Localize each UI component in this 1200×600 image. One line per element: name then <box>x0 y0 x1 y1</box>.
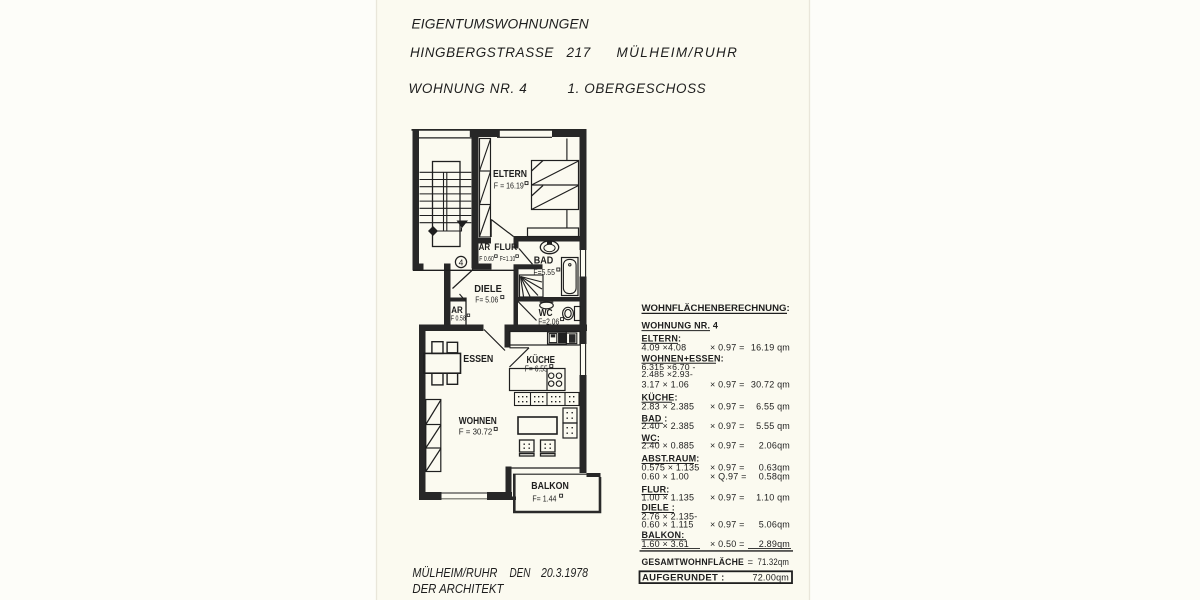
svg-text:0.58qm: 0.58qm <box>759 472 790 482</box>
svg-text:× Q.97 =: × Q.97 = <box>710 472 747 482</box>
svg-text:× 0.97 =: × 0.97 = <box>710 519 745 529</box>
svg-text:2.89qm: 2.89qm <box>759 539 790 549</box>
svg-text:F= 5.06: F= 5.06 <box>475 295 498 304</box>
svg-text:0.60 × 1.00: 0.60 × 1.00 <box>642 472 690 482</box>
svg-text:WOHNEN: WOHNEN <box>459 416 497 427</box>
svg-text:2.06qm: 2.06qm <box>759 440 790 450</box>
svg-text:× 0.97 =: × 0.97 = <box>710 402 745 412</box>
svg-text:F=1.10: F=1.10 <box>500 256 516 263</box>
svg-text:6.55 qm: 6.55 qm <box>756 402 790 412</box>
svg-text:5.06qm: 5.06qm <box>759 519 790 529</box>
svg-text:1.00 × 1.135: 1.00 × 1.135 <box>642 492 695 502</box>
svg-text:F 0.60: F 0.60 <box>479 256 494 263</box>
svg-text:× 0.97 =: × 0.97 = <box>710 440 745 450</box>
svg-text:WOHNUNG NR. 4: WOHNUNG NR. 4 <box>409 81 528 96</box>
svg-text:1. OBERGESCHOSS: 1. OBERGESCHOSS <box>568 81 707 96</box>
svg-text:DEN: DEN <box>510 566 532 580</box>
svg-text:217: 217 <box>566 45 591 60</box>
svg-text:BAD: BAD <box>534 255 554 266</box>
svg-text:DER ARCHITEKT: DER ARCHITEKT <box>412 581 504 596</box>
svg-text:GESAMTWOHNFLÄCHE: GESAMTWOHNFLÄCHE <box>642 557 745 568</box>
svg-text:72.00qm: 72.00qm <box>753 573 790 584</box>
svg-text:=: = <box>748 557 754 568</box>
svg-text:F= 1.44: F= 1.44 <box>532 494 557 503</box>
svg-text:AR: AR <box>479 242 491 253</box>
svg-text:16.19 qm: 16.19 qm <box>751 343 790 353</box>
svg-text:AUFGERUNDET :: AUFGERUNDET : <box>642 573 725 584</box>
svg-text:1.60 × 3.61: 1.60 × 3.61 <box>642 539 690 549</box>
svg-text:× 0.97 =: × 0.97 = <box>710 421 745 431</box>
svg-text:WOHNFLÄCHENBERECHNUNG:: WOHNFLÄCHENBERECHNUNG: <box>642 303 790 314</box>
svg-text:5.55 qm: 5.55 qm <box>756 421 790 431</box>
svg-text:2.40 × 0.885: 2.40 × 0.885 <box>642 440 695 450</box>
svg-text:× 0.97 =: × 0.97 = <box>710 492 745 502</box>
svg-text:ELTERN: ELTERN <box>493 169 527 180</box>
svg-text:× 0.97 =: × 0.97 = <box>710 380 745 390</box>
svg-text:F=2.06: F=2.06 <box>538 317 559 326</box>
svg-text:× 0.50 =: × 0.50 = <box>710 539 745 549</box>
svg-text:BALKON: BALKON <box>531 480 569 492</box>
svg-text:F = 30.72: F = 30.72 <box>459 428 493 437</box>
svg-text:× 0.97 =: × 0.97 = <box>710 343 745 353</box>
svg-text:AR: AR <box>451 305 463 316</box>
svg-text:0.60 × 1.115: 0.60 × 1.115 <box>642 519 694 529</box>
svg-text:F= 6.55: F= 6.55 <box>525 364 549 373</box>
svg-text:2.485 ×2.93-: 2.485 ×2.93- <box>642 369 693 379</box>
svg-text:30.72 qm: 30.72 qm <box>751 380 790 390</box>
svg-text:HINGBERGSTRASSE: HINGBERGSTRASSE <box>410 45 554 60</box>
svg-text:4: 4 <box>459 257 464 267</box>
svg-text:EIGENTUMSWOHNUNGEN: EIGENTUMSWOHNUNGEN <box>412 17 589 32</box>
svg-text:2.40 × 2.385: 2.40 × 2.385 <box>642 421 695 431</box>
svg-text:2.83 × 2.385: 2.83 × 2.385 <box>642 402 695 412</box>
svg-text:DIELE: DIELE <box>474 283 502 295</box>
svg-text:WOHNUNG NR. 4: WOHNUNG NR. 4 <box>642 321 719 331</box>
svg-text:FLUR: FLUR <box>494 242 517 253</box>
svg-text:MÜLHEIM/RUHR: MÜLHEIM/RUHR <box>412 565 497 580</box>
svg-text:F 0.58: F 0.58 <box>451 316 466 323</box>
svg-text:F = 16.19: F = 16.19 <box>494 182 524 191</box>
svg-text:MÜLHEIM/RUHR: MÜLHEIM/RUHR <box>617 45 739 60</box>
svg-text:ESSEN: ESSEN <box>463 354 493 365</box>
svg-text:3.17 × 1.06: 3.17 × 1.06 <box>642 380 690 390</box>
svg-text:20.3.1978: 20.3.1978 <box>540 566 588 580</box>
svg-text:F=5.55: F=5.55 <box>533 268 555 277</box>
svg-text:1.10 qm: 1.10 qm <box>756 492 790 502</box>
svg-text:71.32qm: 71.32qm <box>758 557 790 568</box>
svg-text:4.09 ×4.08: 4.09 ×4.08 <box>642 343 687 353</box>
